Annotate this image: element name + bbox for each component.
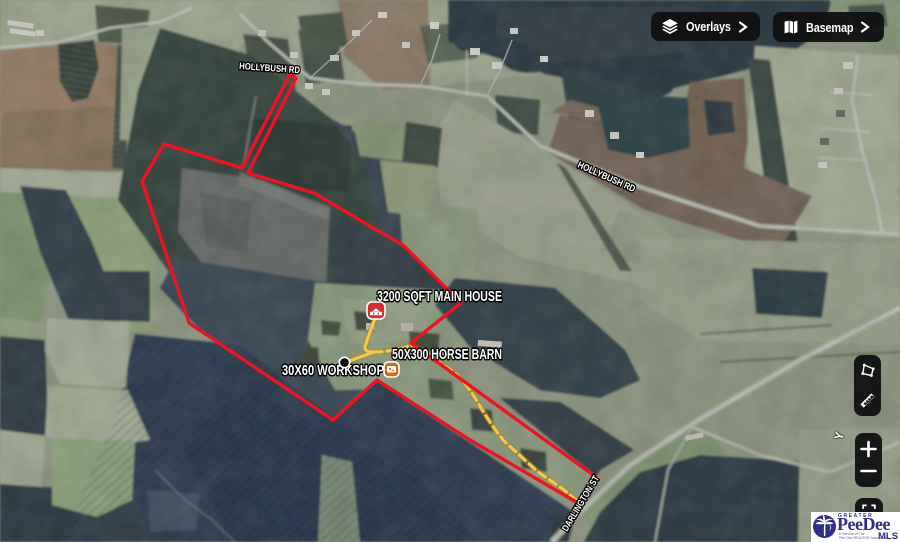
svg-text:50X300 HORSE BARN: 50X300 HORSE BARN xyxy=(392,347,502,363)
svg-text:3200 SQFT MAIN HOUSE: 3200 SQFT MAIN HOUSE xyxy=(377,289,502,305)
svg-text:30X60 WORKSHOP: 30X60 WORKSHOP xyxy=(282,363,384,379)
